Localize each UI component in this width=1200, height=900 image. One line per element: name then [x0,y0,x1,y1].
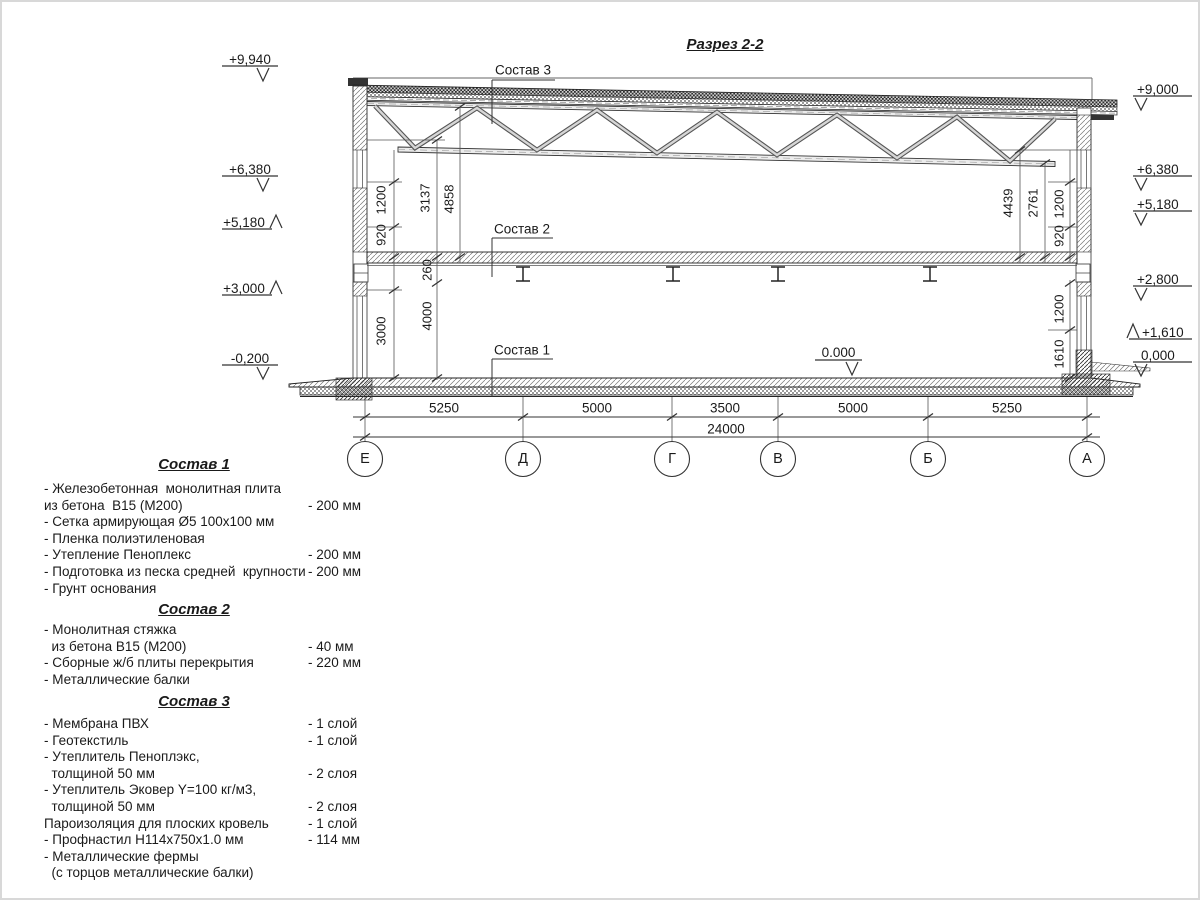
spec-row: - Подготовка из песка средней крупности-… [44,564,464,581]
spec-list-sostav-2: - Монолитная стяжка из бетона В15 (М200)… [44,622,464,688]
dim-label: 1200 [374,186,389,215]
dim-label: 920 [1052,225,1067,247]
dim-label: 3000 [374,317,389,346]
elevation-mark: +6,380 [1137,162,1179,177]
dim-label: 4000 [420,302,435,331]
drawing-title: Разрез 2-2 [575,36,875,53]
elevation-mark: -0,200 [222,351,278,366]
spec-row: (с торцов металлические балки) [44,865,464,882]
spec-row: - Грунт основания [44,581,464,598]
dim-label: 1610 [1052,340,1067,369]
dim-label: 2761 [1026,189,1041,218]
spec-row: - Металлические фермы [44,849,464,866]
dim-label: 5250 [429,401,459,416]
vertical-dim-lines [367,107,1077,380]
elevation-mark: +5,180 [1137,197,1179,212]
callout-sostav-2: Состав 2 [494,222,550,237]
elevation-mark: +9,000 [1137,82,1179,97]
spec-header-sostav-2: Состав 2 [44,601,344,618]
spec-row: - Профнастил Н114х750х1.0 мм- 114 мм [44,832,464,849]
spec-row: Пароизоляция для плоских кровель- 1 слой [44,816,464,833]
spec-row: - Утепление Пеноплекс- 200 мм [44,547,464,564]
spec-header-sostav-1: Состав 1 [44,456,344,473]
spec-row: - Металлические балки [44,672,464,689]
spec-row: - Утеплитель Пеноплэкс, [44,749,464,766]
spec-row: - Мембрана ПВХ- 1 слой [44,716,464,733]
spec-list-sostav-3: - Мембрана ПВХ- 1 слой - Геотекстиль- 1 … [44,716,464,882]
dim-label: 4439 [1001,189,1016,218]
axis-bubble-label: Д [518,451,528,467]
elevation-mark: +5,180 [218,215,270,230]
dim-label: 920 [374,224,389,246]
floor-slab-level2 [367,252,1077,281]
spec-row: - Сборные ж/б плиты перекрытия- 220 мм [44,655,464,672]
spec-row: - Геотекстиль- 1 слой [44,733,464,750]
dim-label: 4858 [442,185,457,214]
spec-row: толщиной 50 мм- 2 слоя [44,799,464,816]
axis-bubble-label: А [1082,451,1092,467]
dim-label: 1200 [1052,295,1067,324]
spec-row: толщиной 50 мм- 2 слоя [44,766,464,783]
dim-label: 5250 [992,401,1022,416]
elevation-mark: +9,940 [222,52,278,67]
elevation-mark: +2,800 [1137,272,1179,287]
axis-bubble-label: В [773,451,783,467]
spec-list-sostav-1: - Железобетонная монолитная плита из бет… [44,481,464,597]
dim-label: 3500 [710,401,740,416]
dim-label-total: 24000 [707,422,745,437]
axis-bubbles [348,442,1105,477]
dim-label: 260 [420,259,435,281]
dim-label: 3137 [418,184,433,213]
spec-row: - Утеплитель Эковер Y=100 кг/м3, [44,782,464,799]
dim-label: 5000 [838,401,868,416]
steel-beam-icon [516,267,937,281]
ground-floor [289,374,1140,400]
axis-bubble-label: Б [923,451,933,467]
spec-row: - Монолитная стяжка [44,622,464,639]
spec-row: - Сетка армирующая Ø5 100х100 мм [44,514,464,531]
drawing-sheet: Разрез 2-2 +9,940 +6,380 +5,180 +3,000 -… [0,0,1200,900]
dim-label: 5000 [582,401,612,416]
elevation-mark-floor-zero: 0.000 [815,345,862,360]
spec-row: - Пленка полиэтиленовая [44,531,464,548]
left-wall [353,86,368,378]
elevation-mark: +1,610 [1142,325,1184,340]
spec-header-sostav-3: Состав 3 [44,693,344,710]
spec-row: - Железобетонная монолитная плита [44,481,464,498]
axis-bubble-label: Г [668,451,676,467]
elevation-mark: +6,380 [222,162,278,177]
callout-sostav-1: Состав 1 [494,343,550,358]
spec-row: из бетона В15 (М200)- 200 мм [44,498,464,515]
elevation-mark: +3,000 [218,281,270,296]
axis-bubble-label: Е [360,451,370,467]
elevation-mark: 0,000 [1141,348,1175,363]
spec-row: из бетона В15 (М200)- 40 мм [44,639,464,656]
callout-sostav-3: Состав 3 [495,63,551,78]
dim-label: 1200 [1052,190,1067,219]
